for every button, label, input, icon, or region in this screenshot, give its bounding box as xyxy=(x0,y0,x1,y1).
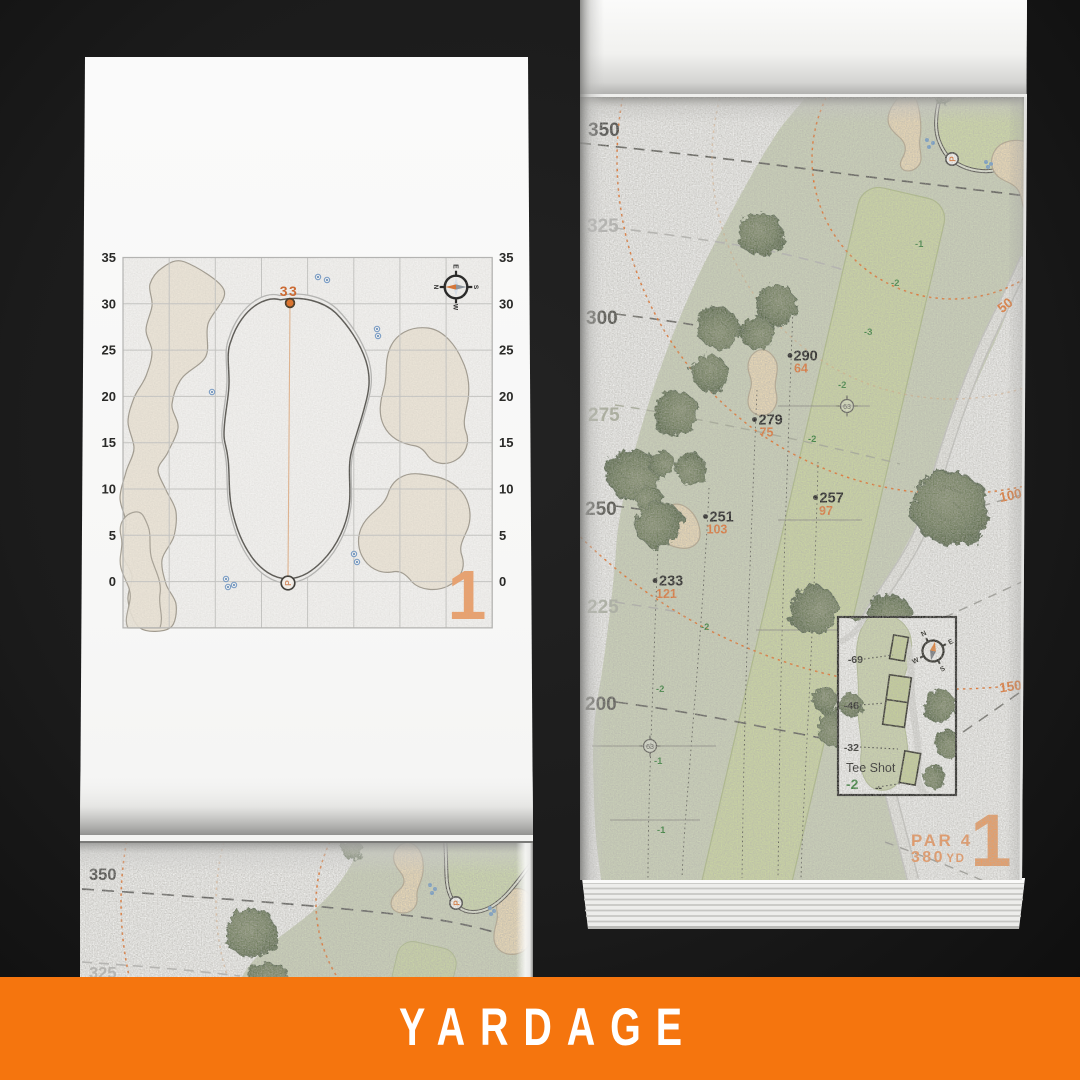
svg-text:35: 35 xyxy=(499,250,513,265)
svg-text:5: 5 xyxy=(109,528,116,543)
svg-text:35: 35 xyxy=(102,250,116,265)
svg-text:20: 20 xyxy=(102,389,116,404)
svg-text:YARDAGE: YARDAGE xyxy=(399,998,697,1057)
svg-text:5: 5 xyxy=(499,528,506,543)
svg-text:30: 30 xyxy=(102,296,116,311)
svg-text:0: 0 xyxy=(109,574,116,589)
svg-text:30: 30 xyxy=(499,296,513,311)
svg-text:25: 25 xyxy=(102,343,116,358)
svg-text:15: 15 xyxy=(102,435,116,450)
svg-text:10: 10 xyxy=(499,482,513,497)
svg-text:25: 25 xyxy=(499,343,513,358)
svg-text:15: 15 xyxy=(499,435,513,450)
svg-text:10: 10 xyxy=(102,482,116,497)
svg-text:20: 20 xyxy=(499,389,513,404)
svg-text:0: 0 xyxy=(499,574,506,589)
